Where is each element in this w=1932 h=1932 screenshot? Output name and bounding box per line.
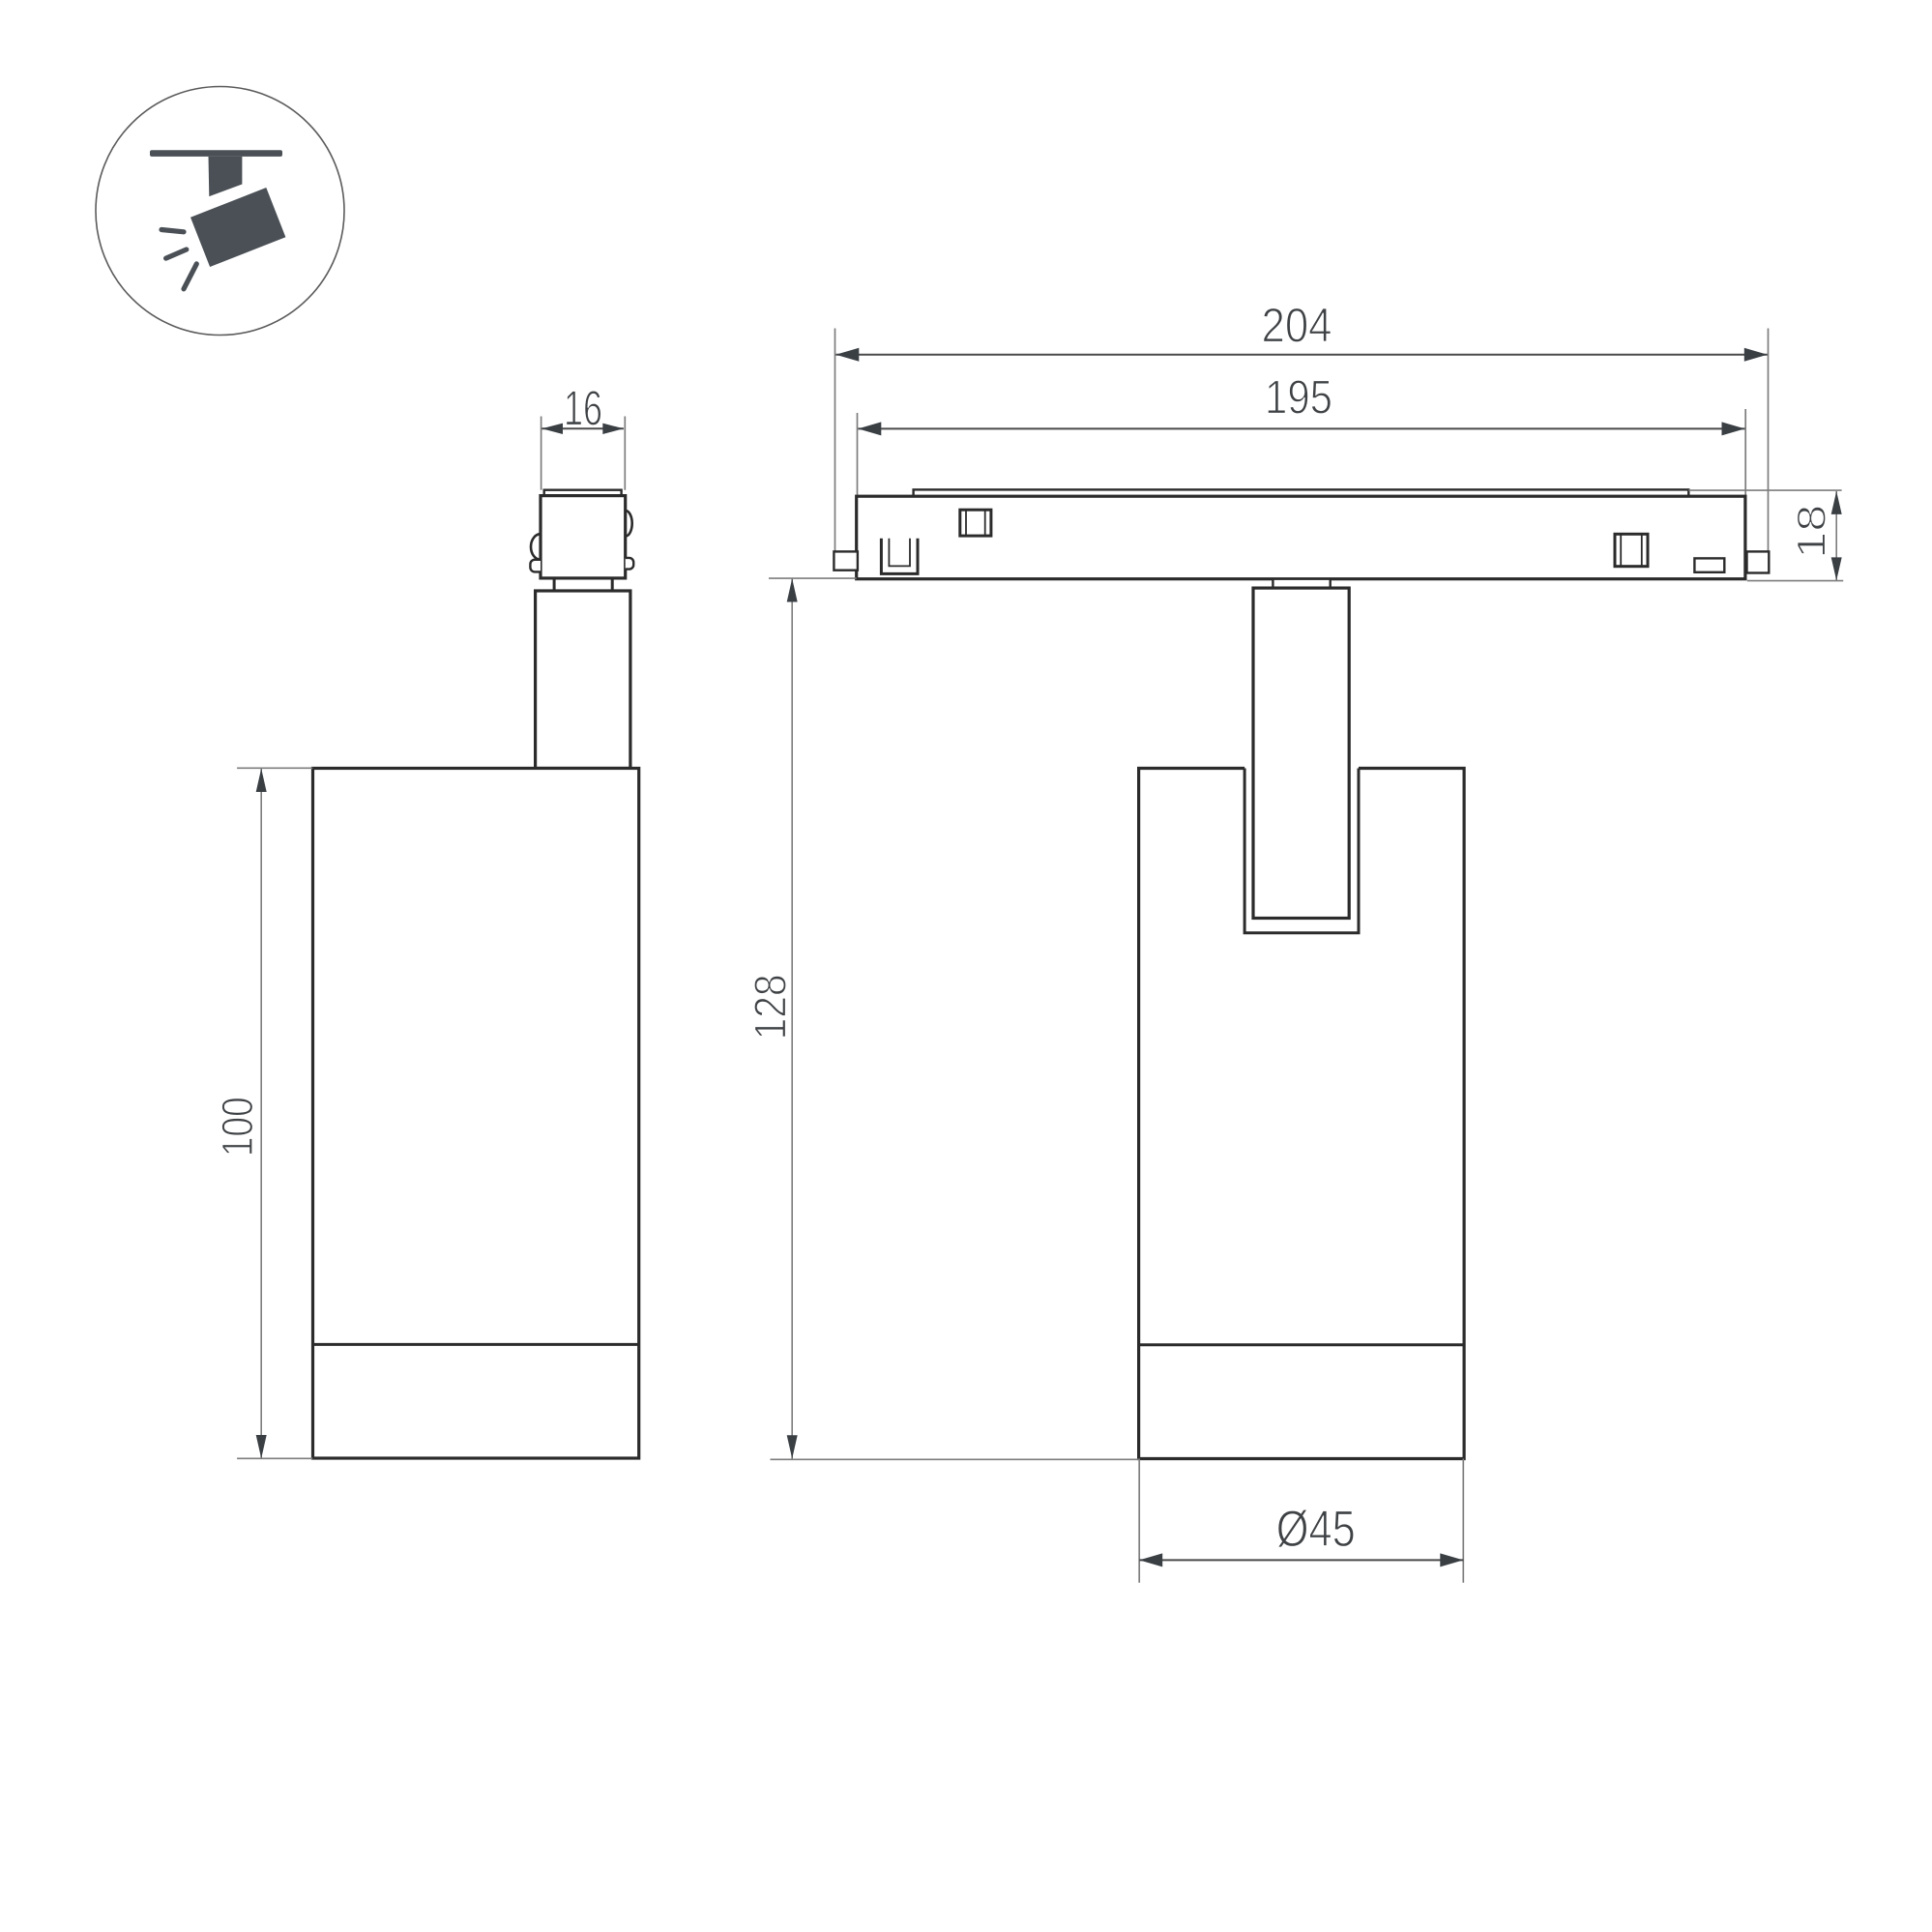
svg-text:204: 204	[1262, 297, 1332, 352]
svg-text:16: 16	[564, 381, 602, 436]
svg-text:195: 195	[1265, 372, 1332, 424]
svg-text:100: 100	[213, 1097, 262, 1156]
svg-text:128: 128	[746, 974, 796, 1039]
svg-text:18: 18	[1789, 505, 1834, 559]
svg-text:Ø45: Ø45	[1276, 1501, 1356, 1558]
